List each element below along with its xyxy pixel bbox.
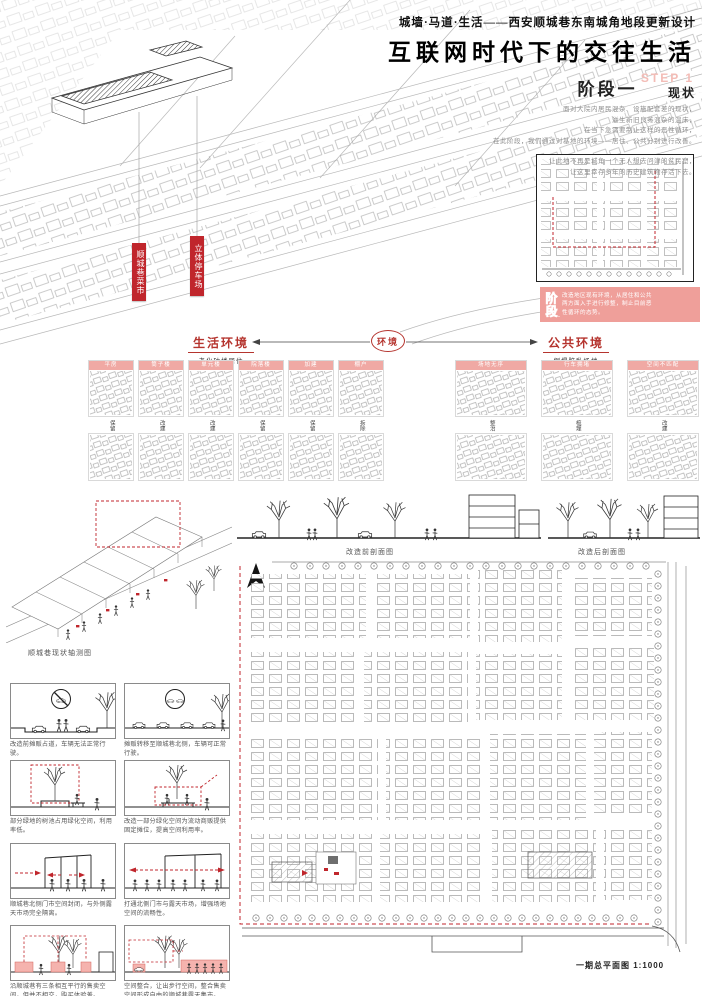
thumbnail-after [88, 433, 134, 481]
row-label: 梳理 [574, 417, 580, 433]
panel-caption: 打通北侧门市与露天市场，增强场地空间的流畅性。 [124, 901, 230, 918]
panel-shops-open: 打通北侧门市与露天市场，增强场地空间的流畅性。 [124, 843, 230, 918]
street-axonometric-drawing [6, 487, 232, 643]
presentation-board: 顺城巷菜市 立体停车场 城墙·马道·生活——西安顺城巷东南城角地段更新设计 互联… [0, 0, 702, 996]
section-before-drawing [237, 492, 541, 546]
thumbnail-before: 场地无序 [455, 360, 527, 417]
section-before-caption: 改造前剖面图 [346, 547, 394, 557]
thumbnail-before: 加建 [288, 360, 334, 417]
tree-row-top [291, 563, 649, 569]
panel-shops-closed: 顺城巷北侧门市空间封闭，与外侧露天市场完全隔离。 [10, 843, 116, 918]
thumbnail-after [238, 433, 284, 481]
panel-green-before: 部分绿地的树池占用绿化空间，利用率低。 [10, 760, 116, 835]
stage-banner: 阶段 —— 改造地区现有环境，从居住和公共 两方面入手进行修整，制止目前恶 性循… [540, 287, 700, 322]
step-watermark: STEP 1 [641, 71, 694, 85]
env-column: 筒子楼 改建 [138, 360, 184, 481]
axon-label-parking-text: 立体停车场 [194, 244, 203, 289]
row-label: 改建 [660, 417, 666, 433]
row-label: 改建 [208, 417, 214, 433]
thumbnail-before: 院落楼 [238, 360, 284, 417]
living-environment-grid: 平房 保留 筒子楼 改建 单元楼 改建 院落楼 [88, 360, 384, 481]
thumbnail-before: 空间不匹配 [627, 360, 699, 417]
stage-status: 现状 [668, 86, 696, 100]
thumbnail-header: 加建 [289, 361, 333, 370]
tree-row-bottom [253, 915, 637, 921]
thumbnail-header: 平房 [89, 361, 133, 370]
thumbnail-before: 行车拥堵 [541, 360, 613, 417]
intro-line: 让此地不再是城角一个无人想去问津的贫民窟， [226, 157, 696, 168]
stage-banner-text: 改造地区现有环境，从居住和公共 两方面入手进行修整，制止目前恶 性循环的态势。 [562, 292, 652, 317]
thumbnail-before: 筒子楼 [138, 360, 184, 417]
page-title: 互联网时代下的交往生活 [226, 33, 696, 67]
env-column: 加建 保留 [288, 360, 334, 481]
panel-after-vendors: 摊贩转移至顺城巷北侧，车辆可正常行驶。 [124, 683, 230, 758]
intro-line: 面对大院内居民混杂、设施配套差的现状， [226, 105, 696, 116]
stage-banner-dash: —— [548, 314, 560, 320]
thumbnail-header: 空间不匹配 [628, 361, 698, 370]
right-arrow-connector [406, 337, 538, 347]
thumbnail-header: 单元楼 [189, 361, 233, 370]
panel-caption: 改造前摊贩占道，车辆无法正常行驶。 [10, 741, 116, 758]
thumbnail-header: 场地无序 [456, 361, 526, 370]
banner-line: 性循环的态势。 [562, 309, 652, 317]
thumbnail-before: 棚户 [338, 360, 384, 417]
panel-stalls-parallel: 沿顺城巷有三条相互平行的售卖空间，但并不相交，购买体验差。 [10, 925, 116, 996]
env-column: 单元楼 改建 [188, 360, 234, 481]
thumbnail-header: 棚户 [339, 361, 383, 370]
panel-diagram [124, 760, 230, 816]
section-after-caption: 改造后剖面图 [578, 547, 626, 557]
thumbnail-after [188, 433, 234, 481]
tree-row-right [655, 571, 661, 925]
env-column: 平房 保留 [88, 360, 134, 481]
series-title: 城墙·马道·生活——西安顺城巷东南城角地段更新设计 [226, 14, 696, 30]
site-plan-drawing [232, 556, 702, 960]
panel-caption: 顺城巷北侧门市空间封闭，与外侧露天市场完全隔离。 [10, 901, 116, 918]
axon-label-parking: 立体停车场 [190, 236, 204, 296]
env-column: 院落楼 保留 [238, 360, 284, 481]
environment-node-label: 环境 [377, 335, 399, 348]
thumbnail-after [288, 433, 334, 481]
panel-caption: 沿顺城巷有三条相互平行的售卖空间，但并不相交，购买体验差。 [10, 983, 116, 996]
env-column: 场地无序 整治 [455, 360, 527, 481]
panel-diagram [10, 683, 116, 739]
vehicles-ok-icon [166, 690, 185, 709]
banner-line: 改造地区现有环境，从居住和公共 [562, 292, 652, 300]
section-after-drawing [548, 492, 700, 546]
intro-line: 在当下急需要制止这样的恶性循环， [226, 126, 696, 137]
intro-line: 滋生新旧良莠混杂的温床， [226, 116, 696, 127]
intro-line: 让这里幸存多年的历史建筑物存活下去。 [226, 168, 696, 179]
thumbnail-header: 院落楼 [239, 361, 283, 370]
thumbnail-after [338, 433, 384, 481]
row-label: 拆除 [358, 417, 364, 433]
stage-label: 阶段一 [578, 80, 638, 99]
row-label: 改建 [158, 417, 164, 433]
thumbnail-after [455, 433, 527, 481]
public-environment-label: 公共环境 [543, 334, 609, 353]
panel-diagram [124, 683, 230, 739]
siteplan-caption: 一期总平面图 1:1000 [576, 960, 664, 971]
env-column: 空间不匹配 改建 [627, 360, 699, 481]
thumbnail-before: 平房 [88, 360, 134, 417]
no-vehicle-icon [52, 690, 71, 709]
thumbnail-after [627, 433, 699, 481]
row-label: 整治 [488, 417, 494, 433]
panel-caption: 摊贩转移至顺城巷北侧，车辆可正常行驶。 [124, 741, 230, 758]
banner-line: 两方面入手进行修整，制止目前恶 [562, 300, 652, 308]
thumbnail-before: 单元楼 [188, 360, 234, 417]
panel-green-after: 改造一部分绿化空间为流动商贩提供固定摊位，提高空间利用率。 [124, 760, 230, 835]
panel-diagram [124, 843, 230, 899]
panel-diagram [124, 925, 230, 981]
panel-before-vendors: 改造前摊贩占道，车辆无法正常行驶。 [10, 683, 116, 758]
intro-paragraph-2: 让此地不再是城角一个无人想去问津的贫民窟， 让这里幸存多年的历史建筑物存活下去。 [226, 157, 696, 178]
intro-paragraph: 面对大院内居民混杂、设施配套差的现状， 滋生新旧良莠混杂的温床， 在当下急需要制… [226, 105, 696, 148]
stage-row: STEP 1 阶段一 现状 [226, 75, 696, 97]
public-environment-grid: 场地无序 整治 行车拥堵 梳理 空间不匹配 改建 [455, 360, 699, 481]
axon-label-market: 顺城巷菜市 [132, 243, 146, 301]
axon-label-market-text: 顺城巷菜市 [136, 250, 145, 295]
panel-caption: 部分绿地的树池占用绿化空间，利用率低。 [10, 818, 116, 835]
panel-diagram [10, 760, 116, 816]
env-column: 行车拥堵 梳理 [541, 360, 613, 481]
row-label: 保留 [108, 417, 114, 433]
panel-caption: 改造一部分绿化空间为流动商贩提供固定摊位，提高空间利用率。 [124, 818, 230, 835]
panel-diagram [10, 925, 116, 981]
environment-node: 环境 [371, 330, 405, 352]
env-column: 棚户 拆除 [338, 360, 384, 481]
header: 城墙·马道·生活——西安顺城巷东南城角地段更新设计 互联网时代下的交往生活 ST… [226, 14, 696, 178]
left-arrow-connector [252, 337, 370, 347]
thumbnail-after [138, 433, 184, 481]
panel-diagram [10, 843, 116, 899]
street-axon-caption: 顺城巷现状轴测图 [28, 648, 92, 658]
thumbnail-header: 行车拥堵 [542, 361, 612, 370]
row-label: 保留 [308, 417, 314, 433]
living-environment-label: 生活环境 [188, 334, 254, 353]
row-label: 保留 [258, 417, 264, 433]
panel-caption: 空间整合，让出步行空间，整合售卖空间形成自由的顺城巷露天集市。 [124, 983, 230, 996]
intro-line: 在此阶段，我们通过对基地的环境——居住、公共分别进行改善。 [226, 137, 696, 148]
thumbnail-after [541, 433, 613, 481]
panel-stalls-merged: 空间整合，让出步行空间，整合售卖空间形成自由的顺城巷露天集市。 [124, 925, 230, 996]
thumbnail-header: 筒子楼 [139, 361, 183, 370]
